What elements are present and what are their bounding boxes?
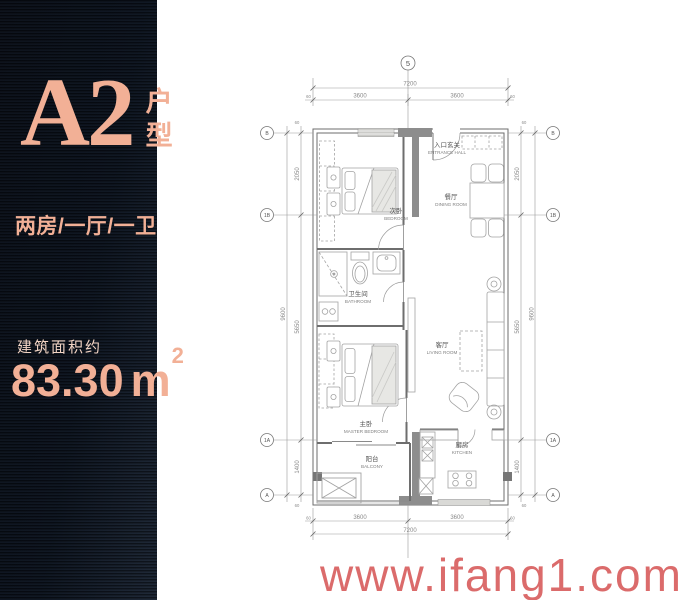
watermark: www.ifang1.com bbox=[320, 548, 683, 600]
dim-bottom-offset2: 60 bbox=[510, 516, 515, 521]
dim-top-seg2: 3600 bbox=[450, 94, 464, 100]
dim-left-offset2: 60 bbox=[295, 503, 300, 508]
dim-top-seg1: 3600 bbox=[353, 94, 367, 100]
room-label-bathroom-cn: 卫生间 bbox=[348, 289, 368, 298]
room-label-bedroom-en: BEDROOM bbox=[384, 216, 408, 221]
axis-marker-labels: 5 B 1B 1A A B 1B 1A A bbox=[264, 59, 557, 499]
room-label-dining-en: DINING ROOM bbox=[435, 202, 467, 207]
dim-left-seg2: 5650 bbox=[295, 320, 301, 334]
room-label-bedroom-cn: 次卧 bbox=[390, 206, 404, 215]
axis-top-label: 5 bbox=[406, 59, 410, 68]
axis-right-1a: 1A bbox=[550, 438, 557, 444]
floorplan-drawing: 5 B 1B 1A A B 1B 1A A 7200 3600 3600 60 … bbox=[0, 0, 700, 600]
dim-top-total: 7200 bbox=[403, 82, 417, 88]
room-label-kitchen-cn: 厨房 bbox=[456, 440, 469, 449]
dim-top-offset2: 60 bbox=[510, 94, 515, 99]
axis-right-b: B bbox=[551, 131, 555, 137]
entry-closet bbox=[462, 136, 502, 149]
dim-left-total: 9600 bbox=[281, 307, 287, 321]
dim-bottom-seg2: 3600 bbox=[450, 515, 464, 521]
dim-right-offset2: 60 bbox=[522, 503, 527, 508]
dim-left-seg1: 2050 bbox=[295, 167, 301, 181]
dim-bottom-offset1: 60 bbox=[306, 516, 311, 521]
dim-bottom-total: 7200 bbox=[403, 528, 417, 534]
floorplan-page: A2 户型 两房/一厅/一卫 建筑面积约 83.30m2 bbox=[0, 0, 700, 600]
room-label-living-en: LIVING ROOM bbox=[427, 350, 458, 355]
kitchen-fixtures bbox=[419, 430, 504, 494]
dim-right-offset1: 60 bbox=[522, 120, 527, 125]
dim-bottom-seg1: 3600 bbox=[353, 515, 367, 521]
room-label-living-cn: 客厅 bbox=[436, 340, 450, 349]
room-label-balcony-cn: 阳台 bbox=[366, 454, 379, 463]
axis-right-1b: 1B bbox=[550, 213, 557, 219]
axis-left-b: B bbox=[265, 131, 269, 137]
axis-left-1b: 1B bbox=[264, 213, 271, 219]
axis-left-a: A bbox=[265, 493, 269, 499]
room-label-entrance-en: ENTRANCE HALL bbox=[428, 150, 466, 155]
balcony-fixtures bbox=[317, 473, 361, 503]
room-label-dining-cn: 餐厅 bbox=[445, 192, 459, 201]
balcony-sliding-door bbox=[332, 442, 396, 446]
master-furniture bbox=[319, 334, 398, 408]
room-label-entrance-cn: 入口玄关 bbox=[434, 140, 461, 149]
dim-left-seg3: 1400 bbox=[295, 460, 301, 474]
axis-markers bbox=[261, 56, 560, 502]
bedroom-furniture bbox=[320, 141, 399, 241]
axis-right-a: A bbox=[551, 493, 555, 499]
dim-right-total: 9600 bbox=[530, 307, 536, 321]
dim-right-seg1: 2050 bbox=[515, 167, 521, 181]
room-label-bathroom-en: BATHROOM bbox=[345, 299, 371, 304]
dim-left-offset1: 60 bbox=[295, 120, 300, 125]
room-label-master-en: MASTER BEDROOM bbox=[344, 429, 388, 434]
room-label-kitchen-en: KITCHEN bbox=[452, 450, 472, 455]
dim-top-offset1: 60 bbox=[306, 94, 311, 99]
dim-right-seg2: 5650 bbox=[515, 320, 521, 334]
dining-furniture bbox=[470, 164, 504, 237]
living-furniture bbox=[408, 277, 504, 419]
room-label-balcony-en: BALCONY bbox=[361, 464, 383, 469]
bathroom-fixtures bbox=[319, 252, 400, 321]
dim-right-seg3: 1400 bbox=[515, 460, 521, 474]
room-label-master-cn: 主卧 bbox=[360, 419, 374, 428]
axis-left-1a: 1A bbox=[264, 438, 271, 444]
